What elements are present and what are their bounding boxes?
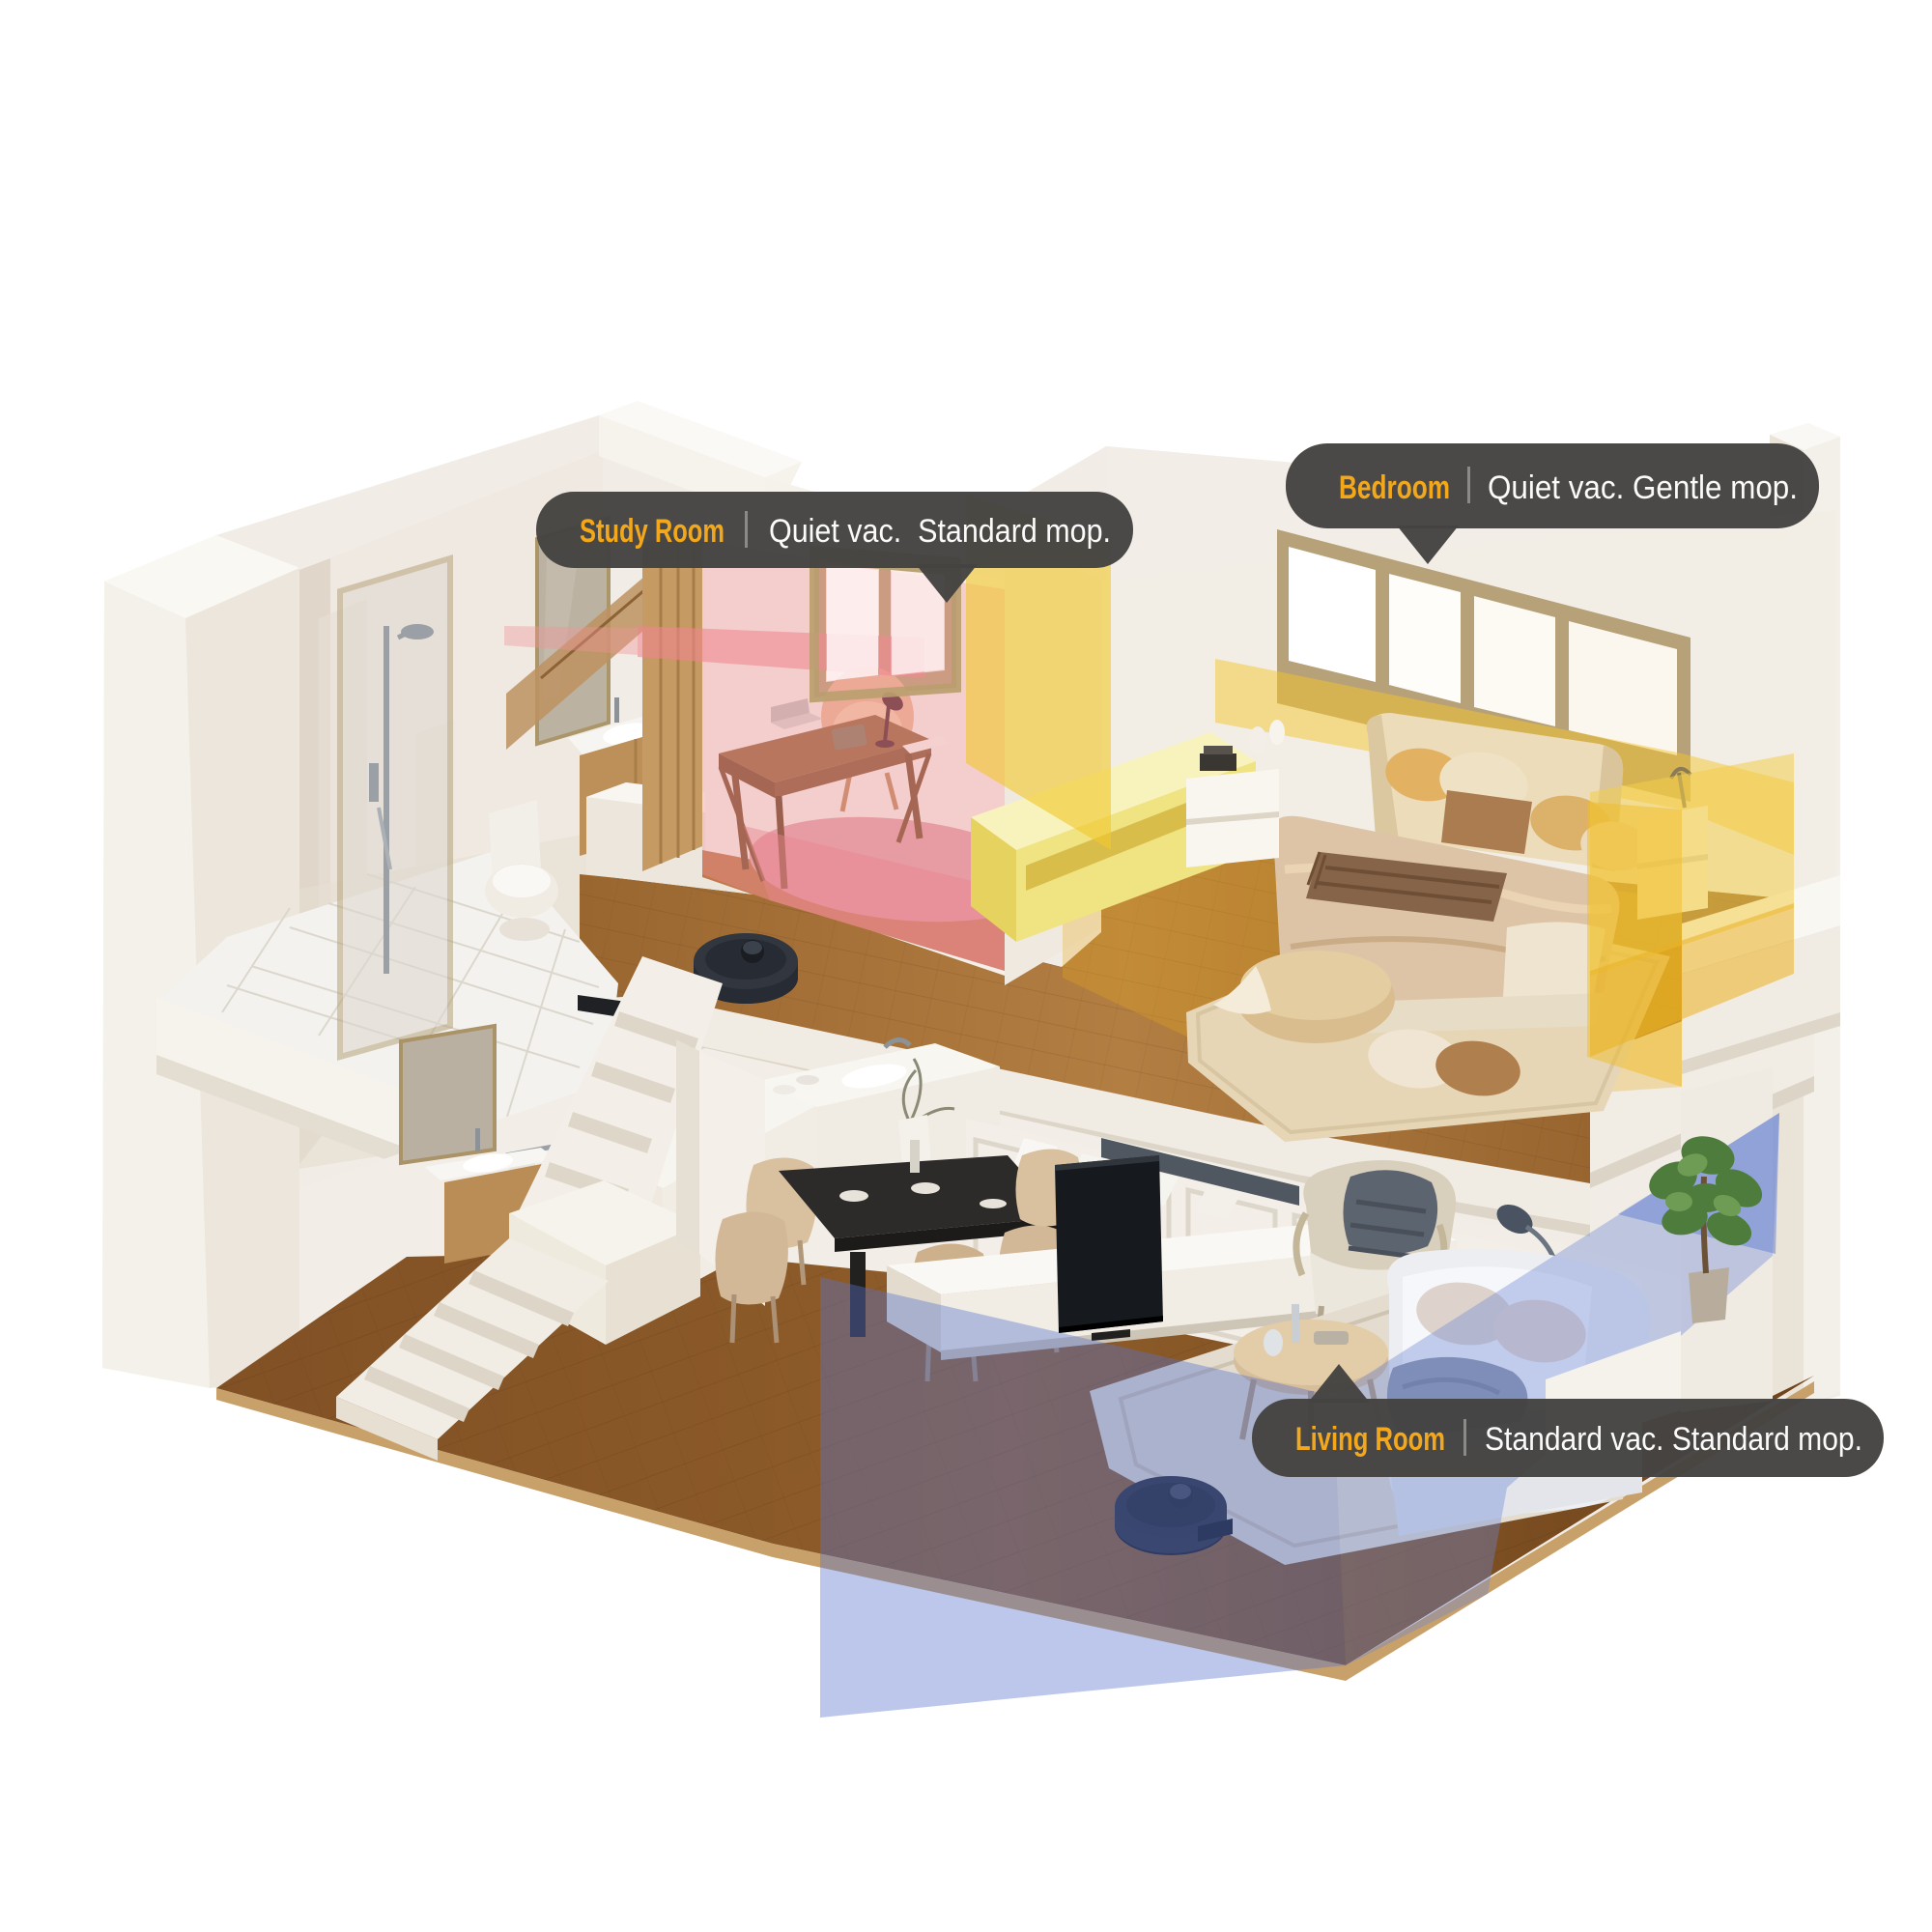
svg-text:Standard vac. Standard mop.: Standard vac. Standard mop. — [1485, 1421, 1862, 1458]
svg-text:Quiet vac. Standard mop.: Quiet vac. Standard mop. — [769, 513, 1111, 550]
svg-text:Living Room: Living Room — [1295, 1421, 1445, 1458]
svg-text:Study Room: Study Room — [580, 513, 724, 550]
svg-text:Quiet vac. Gentle mop.: Quiet vac. Gentle mop. — [1488, 469, 1798, 506]
svg-text:Bedroom: Bedroom — [1339, 469, 1450, 506]
